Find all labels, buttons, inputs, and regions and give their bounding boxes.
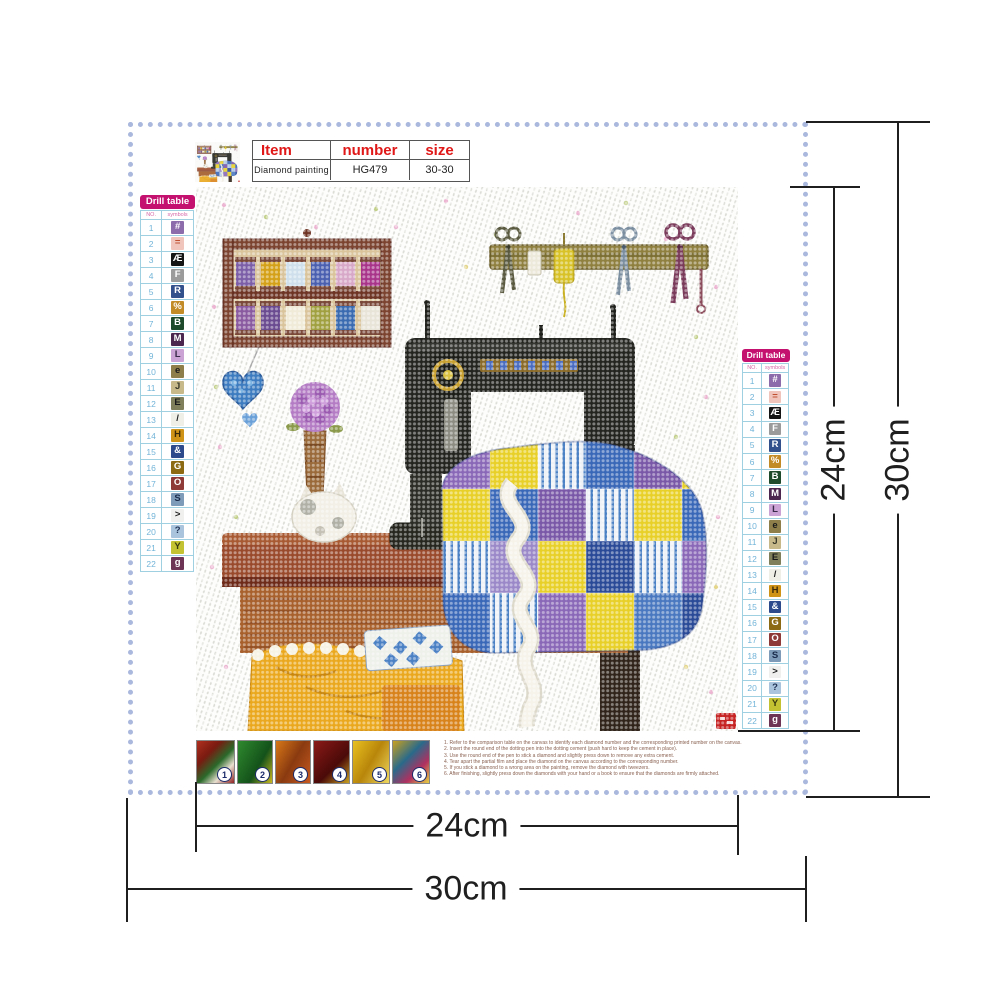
drill-row: 16G <box>141 460 193 476</box>
drill-symbol: F <box>171 269 184 282</box>
drill-symbol: ? <box>171 525 184 538</box>
drill-no: 12 <box>743 551 762 566</box>
drill-no: 8 <box>743 486 762 501</box>
drill-symbol: % <box>769 455 782 468</box>
drill-no: 14 <box>743 583 762 598</box>
drill-row: 5R <box>141 284 193 300</box>
drill-symbol-cell: F <box>762 422 788 437</box>
drill-no: 20 <box>141 524 162 539</box>
drill-symbol: = <box>769 391 782 404</box>
drill-symbol-cell: J <box>162 380 193 395</box>
drill-row: 2= <box>743 389 788 405</box>
step-number-badge: 6 <box>412 767 427 782</box>
drill-symbol-cell: L <box>162 348 193 363</box>
drill-row: 3Æ <box>743 405 788 421</box>
drill-no: 20 <box>743 681 762 696</box>
drill-no: 15 <box>743 600 762 615</box>
drill-symbol: S <box>171 493 184 506</box>
drill-row: 7B <box>743 470 788 486</box>
drill-row: 3Æ <box>141 252 193 268</box>
drill-symbol-cell: ? <box>162 524 193 539</box>
info-size-value: 30-30 <box>410 160 469 180</box>
drill-no: 18 <box>743 648 762 663</box>
drill-symbol: G <box>171 461 184 474</box>
drill-no: 3 <box>743 405 762 420</box>
drill-symbol-cell: # <box>762 373 788 388</box>
drill-symbol: Y <box>769 698 782 711</box>
drill-no: 1 <box>141 220 162 235</box>
drill-no: 22 <box>141 556 162 571</box>
drill-symbol: % <box>171 301 184 314</box>
step-thumbnail-2: 2 <box>237 740 273 784</box>
drill-symbol-cell: Y <box>762 697 788 712</box>
drill-symbol-cell: H <box>162 428 193 443</box>
drill-symbol-cell: J <box>762 535 788 550</box>
drill-row: 18S <box>141 492 193 508</box>
drill-symbol-cell: O <box>762 632 788 647</box>
drill-symbol: & <box>769 601 782 614</box>
drill-row: 6% <box>743 454 788 470</box>
drill-row: 4F <box>141 268 193 284</box>
drill-row: 20? <box>743 681 788 697</box>
drill-symbol-cell: / <box>762 567 788 582</box>
step-thumbnail-4: 4 <box>313 740 350 784</box>
drill-symbol-cell: = <box>162 236 193 251</box>
product-image-page: Item number size Diamond painting HG479 … <box>0 0 1001 1001</box>
drill-symbol-cell: = <box>762 389 788 404</box>
drill-no: 2 <box>141 236 162 251</box>
drill-symbol-cell: M <box>162 332 193 347</box>
drill-no: 5 <box>141 284 162 299</box>
drill-symbol-cell: L <box>762 503 788 518</box>
drill-col-symbols: symbols <box>162 211 193 219</box>
step-number-badge: 3 <box>293 767 308 782</box>
drill-row: 8M <box>743 486 788 502</box>
drill-no: 22 <box>743 713 762 728</box>
drill-no: 13 <box>141 412 162 427</box>
drill-symbol: L <box>171 349 184 362</box>
drill-table-title-right: Drill table <box>742 349 790 362</box>
drill-no: 15 <box>141 444 162 459</box>
diamond-dot-overlay <box>196 187 738 731</box>
dim-tick <box>737 795 739 855</box>
drill-symbol-cell: & <box>162 444 193 459</box>
drill-no: 5 <box>743 438 762 453</box>
drill-no: 11 <box>141 380 162 395</box>
drill-symbol-cell: g <box>162 556 193 571</box>
drill-symbol: e <box>769 520 782 533</box>
drill-symbol-cell: Æ <box>762 405 788 420</box>
drill-no: 7 <box>141 316 162 331</box>
drill-row: 21Y <box>743 697 788 713</box>
drill-symbol-cell: H <box>762 583 788 598</box>
drill-symbol: S <box>769 650 782 663</box>
drill-symbol: J <box>769 536 782 549</box>
step-number-badge: 2 <box>255 767 270 782</box>
drill-no: 6 <box>743 454 762 469</box>
drill-row: 12E <box>141 396 193 412</box>
drill-symbol-cell: G <box>762 616 788 631</box>
step-number-badge: 4 <box>332 767 347 782</box>
dim-tick <box>806 796 930 798</box>
drill-row: 8M <box>141 332 193 348</box>
drill-symbol-cell: > <box>162 508 193 523</box>
drill-no: 17 <box>743 632 762 647</box>
drill-row: 15& <box>141 444 193 460</box>
drill-row: 1# <box>141 220 193 236</box>
info-header-number: number <box>331 141 410 160</box>
step-thumbnail-6: 6 <box>392 740 430 784</box>
drill-symbol: B <box>171 317 184 330</box>
drill-row: 19> <box>743 664 788 680</box>
drill-symbol-cell: B <box>162 316 193 331</box>
dim-label-canvas-height: 24cm <box>813 406 856 513</box>
drill-row: 10e <box>743 519 788 535</box>
drill-row: 21Y <box>141 540 193 556</box>
drill-row: 22g <box>743 713 788 728</box>
drill-symbol: R <box>171 285 184 298</box>
info-header-size: size <box>410 141 469 160</box>
dim-tick <box>195 782 197 852</box>
canvas-illustration <box>196 187 738 731</box>
drill-row: 15& <box>743 600 788 616</box>
drill-symbol-cell: E <box>762 551 788 566</box>
drill-symbol-cell: B <box>762 470 788 485</box>
drill-no: 3 <box>141 252 162 267</box>
drill-table-title-left: Drill table <box>140 195 195 209</box>
drill-symbol: R <box>769 439 782 452</box>
drill-no: 10 <box>141 364 162 379</box>
dim-tick <box>806 121 930 123</box>
drill-symbol: Æ <box>769 407 782 420</box>
step-thumbnail-5: 5 <box>352 740 390 784</box>
drill-symbol: O <box>769 633 782 646</box>
drill-symbol: Y <box>171 541 184 554</box>
drill-symbol: H <box>769 585 782 598</box>
drill-no: 9 <box>743 503 762 518</box>
dim-label-total-width: 30cm <box>412 868 519 911</box>
drill-no: 17 <box>141 476 162 491</box>
drill-no: 4 <box>141 268 162 283</box>
drill-row: 13/ <box>141 412 193 428</box>
drill-row: 4F <box>743 422 788 438</box>
drill-row: 11J <box>743 535 788 551</box>
drill-no: 12 <box>141 396 162 411</box>
dim-tick <box>805 856 807 922</box>
drill-symbol: # <box>769 374 782 387</box>
drill-symbol-cell: % <box>162 300 193 315</box>
drill-symbol-cell: E <box>162 396 193 411</box>
drill-no: 6 <box>141 300 162 315</box>
drill-symbol: & <box>171 445 184 458</box>
sewing-scene <box>196 187 738 731</box>
drill-row: 14H <box>141 428 193 444</box>
drill-symbol: H <box>171 429 184 442</box>
drill-symbol-cell: ? <box>762 681 788 696</box>
drill-no: 16 <box>141 460 162 475</box>
drill-symbol-cell: F <box>162 268 193 283</box>
drill-no: 8 <box>141 332 162 347</box>
drill-no: 21 <box>141 540 162 555</box>
drill-row: 9L <box>743 503 788 519</box>
drill-symbol: > <box>769 666 782 679</box>
drill-row: 20? <box>141 524 193 540</box>
drill-symbol: E <box>769 552 782 565</box>
item-info-table: Item number size Diamond painting HG479 … <box>252 140 470 182</box>
drill-symbol-cell: g <box>762 713 788 728</box>
drill-symbol-cell: / <box>162 412 193 427</box>
drill-symbol: E <box>171 397 184 410</box>
drill-symbol-cell: Æ <box>162 252 193 267</box>
drill-row: 2= <box>141 236 193 252</box>
drill-symbol-cell: S <box>162 492 193 507</box>
drill-symbol-cell: % <box>762 454 788 469</box>
drill-no: 11 <box>743 535 762 550</box>
design-thumbnail <box>195 142 240 182</box>
drill-symbol-cell: e <box>162 364 193 379</box>
drill-symbol-cell: S <box>762 648 788 663</box>
info-number-value: HG479 <box>331 160 410 180</box>
drill-row: 22g <box>141 556 193 571</box>
step-number-badge: 1 <box>217 767 232 782</box>
drill-no: 1 <box>743 373 762 388</box>
drill-symbol-cell: R <box>162 284 193 299</box>
drill-symbol: e <box>171 365 184 378</box>
drill-row: 17O <box>141 476 193 492</box>
drill-symbol: # <box>171 221 184 234</box>
drill-row: 18S <box>743 648 788 664</box>
drill-columns-header: NO. symbols <box>743 364 788 373</box>
drill-row: 10e <box>141 364 193 380</box>
drill-row: 19> <box>141 508 193 524</box>
drill-symbol: L <box>769 504 782 517</box>
drill-symbol: g <box>171 557 184 570</box>
drill-no: 19 <box>141 508 162 523</box>
drill-symbol: Æ <box>171 253 184 266</box>
drill-symbol-cell: O <box>162 476 193 491</box>
drill-symbol: M <box>769 488 782 501</box>
drill-no: 10 <box>743 519 762 534</box>
drill-row: 5R <box>743 438 788 454</box>
drill-row: 12E <box>743 551 788 567</box>
drill-no: 13 <box>743 567 762 582</box>
drill-col-no: NO. <box>743 364 762 372</box>
drill-symbol: J <box>171 381 184 394</box>
drill-symbol-cell: R <box>762 438 788 453</box>
drill-symbol: M <box>171 333 184 346</box>
drill-columns-header: NO. symbols <box>141 211 193 220</box>
drill-no: 9 <box>141 348 162 363</box>
drill-symbol: > <box>171 509 184 522</box>
step-thumbnail-3: 3 <box>275 740 311 784</box>
dim-tick <box>738 730 860 732</box>
drill-no: 16 <box>743 616 762 631</box>
drill-row: 17O <box>743 632 788 648</box>
drill-symbol-cell: G <box>162 460 193 475</box>
drill-no: 18 <box>141 492 162 507</box>
drill-symbol: / <box>769 569 782 582</box>
drill-row: 1# <box>743 373 788 389</box>
drill-symbol-cell: # <box>162 220 193 235</box>
dim-label-total-height: 30cm <box>877 406 920 513</box>
drill-no: 7 <box>743 470 762 485</box>
drill-symbol: / <box>171 413 184 426</box>
drill-no: 19 <box>743 664 762 679</box>
drill-symbol: G <box>769 617 782 630</box>
drill-row: 7B <box>141 316 193 332</box>
drill-row: 16G <box>743 616 788 632</box>
drill-symbol-cell: > <box>762 664 788 679</box>
step-thumbnail-1: 1 <box>196 740 235 784</box>
instruction-line: 6. After finishing, slightly press down … <box>444 771 740 777</box>
drill-row: 13/ <box>743 567 788 583</box>
drill-symbol: F <box>769 423 782 436</box>
step-number-badge: 5 <box>372 767 387 782</box>
instruction-list: 1. Refer to the comparison table on the … <box>444 740 740 778</box>
drill-row: 6% <box>141 300 193 316</box>
drill-no: 21 <box>743 697 762 712</box>
drill-symbol: g <box>769 714 782 727</box>
info-item-value: Diamond painting <box>253 160 331 180</box>
dim-label-canvas-width: 24cm <box>413 805 520 848</box>
drill-no: 4 <box>743 422 762 437</box>
dim-tick <box>790 186 860 188</box>
drill-no: 2 <box>743 389 762 404</box>
dim-tick <box>126 798 128 922</box>
drill-row: 9L <box>141 348 193 364</box>
drill-symbol-cell: M <box>762 486 788 501</box>
drill-no: 14 <box>141 428 162 443</box>
drill-col-no: NO. <box>141 211 162 219</box>
drill-symbol: ? <box>769 682 782 695</box>
drill-symbol: = <box>171 237 184 250</box>
drill-symbol: B <box>769 471 782 484</box>
drill-symbol-cell: Y <box>162 540 193 555</box>
drill-table-right: NO. symbols 1#2=3Æ4F5R6%7B8M9L10e11J12E1… <box>742 363 789 729</box>
drill-row: 11J <box>141 380 193 396</box>
drill-table-left: NO. symbols 1#2=3Æ4F5R6%7B8M9L10e11J12E1… <box>140 210 194 572</box>
drill-col-symbols: symbols <box>762 364 788 372</box>
info-header-item: Item <box>253 141 331 160</box>
drill-symbol-cell: & <box>762 600 788 615</box>
drill-symbol: O <box>171 477 184 490</box>
drill-symbol-cell: e <box>762 519 788 534</box>
drill-row: 14H <box>743 583 788 599</box>
